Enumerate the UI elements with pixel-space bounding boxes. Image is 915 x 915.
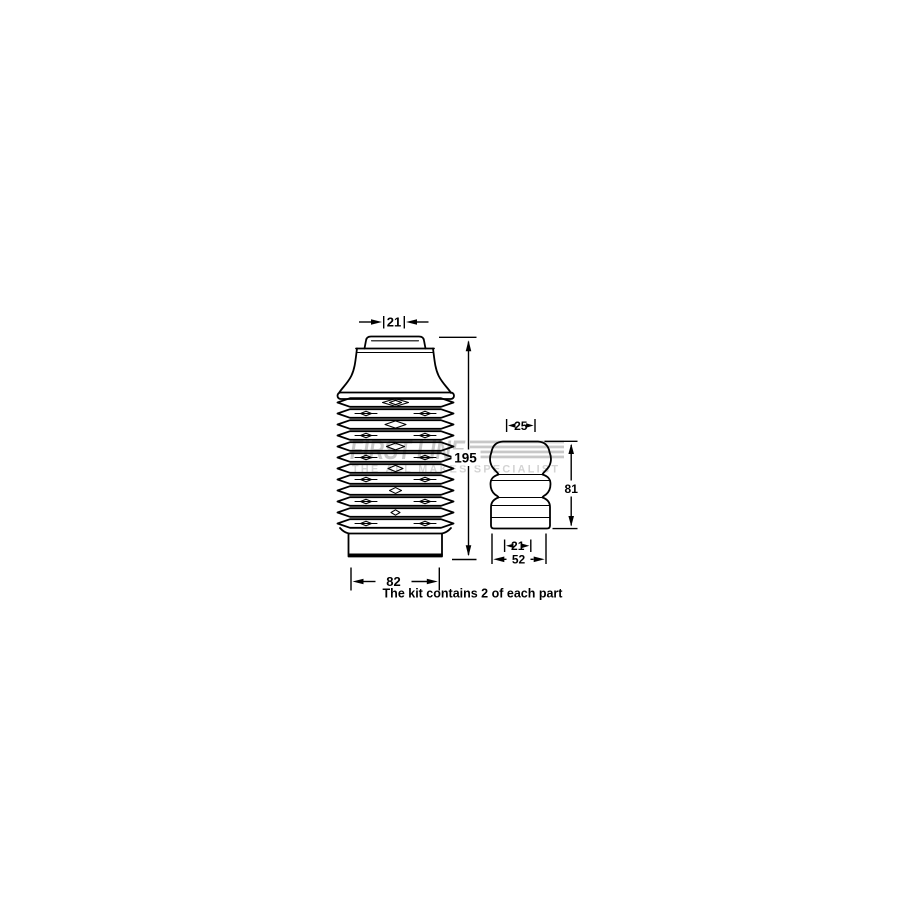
technical-drawing: FIRST LINE THE ALL MAKES SPECIALIST — [0, 0, 915, 915]
dim-label-boot-height: 195 — [454, 451, 477, 466]
boot-collar — [349, 534, 443, 557]
arrow-left-icon — [406, 319, 417, 325]
dim-boot-top-width: 21 — [359, 315, 429, 330]
boot-bell-left — [339, 349, 357, 394]
arrow-right-icon — [526, 423, 534, 427]
arrow-left-icon — [493, 557, 504, 563]
arrow-right-icon — [371, 319, 382, 325]
arrow-right-icon — [427, 579, 438, 585]
arrow-up-icon — [568, 444, 574, 454]
dim-label-bump-base: 52 — [512, 552, 526, 566]
arrow-left-icon — [353, 579, 364, 585]
boot-rib — [338, 420, 454, 429]
boot-cap — [365, 337, 426, 349]
boot-rib — [390, 488, 402, 494]
arrow-down-icon — [568, 516, 574, 526]
bump-stop-outline — [490, 442, 551, 529]
boot-taper-right — [442, 528, 451, 534]
kit-note-text: The kit contains 2 of each part — [383, 587, 564, 601]
arrow-right-icon — [534, 557, 545, 563]
bump-stop-drawing — [490, 442, 551, 529]
boot-bell-right — [433, 349, 451, 394]
boot-taper-left — [340, 528, 349, 534]
dim-bump-inner-width: 21 — [505, 539, 531, 553]
boot-rib — [390, 400, 402, 404]
boot-rib — [385, 421, 406, 428]
arrow-down-icon — [466, 545, 472, 556]
arrow-right-icon — [522, 544, 530, 548]
dim-label-bump-height: 81 — [565, 482, 579, 496]
dim-bump-top-width: 25 — [507, 419, 535, 433]
boot-rib — [391, 510, 400, 515]
dim-label-boot-top: 21 — [387, 315, 401, 330]
watermark-stripe — [470, 446, 564, 449]
arrow-up-icon — [466, 340, 472, 351]
dim-label-bump-top: 25 — [514, 419, 528, 433]
product-diagram-page: FIRST LINE THE ALL MAKES SPECIALIST — [0, 0, 915, 915]
